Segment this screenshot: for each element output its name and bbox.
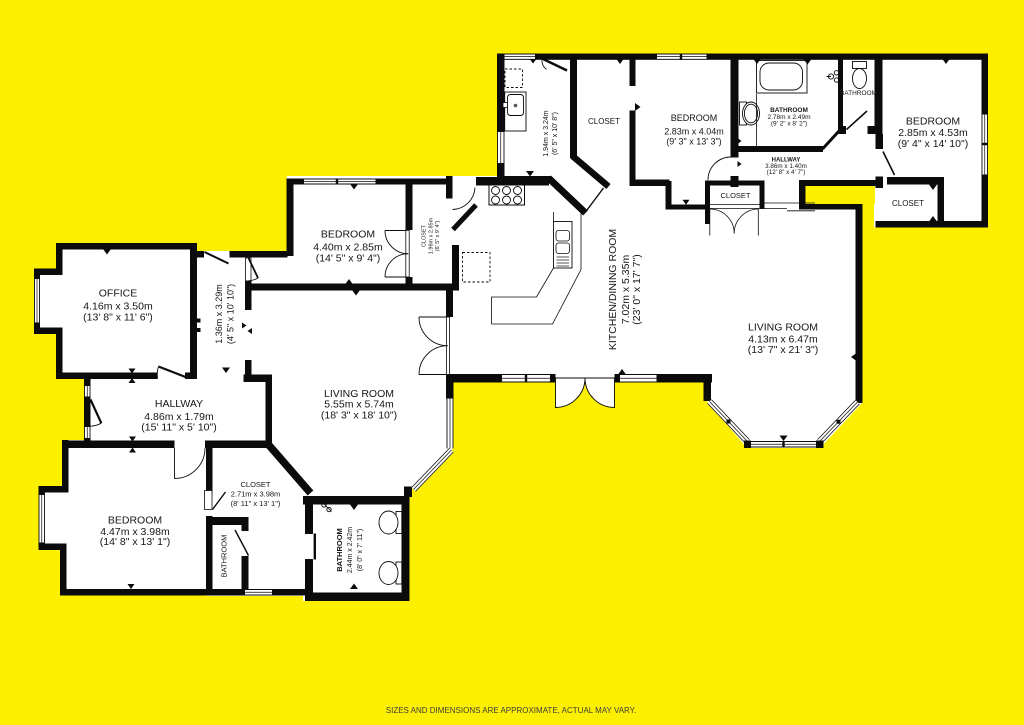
svg-text:BATHROOM: BATHROOM bbox=[770, 107, 808, 114]
svg-text:CLOSET: CLOSET bbox=[892, 199, 924, 208]
svg-text:CLOSET: CLOSET bbox=[720, 191, 750, 200]
svg-text:CLOSET: CLOSET bbox=[240, 480, 270, 489]
svg-text:KITCHEN/DINING ROOM: KITCHEN/DINING ROOM bbox=[607, 229, 619, 350]
svg-text:(13' 7" x 21' 3"): (13' 7" x 21' 3") bbox=[748, 344, 818, 356]
svg-text:OFFICE: OFFICE bbox=[99, 288, 138, 300]
svg-text:BEDROOM: BEDROOM bbox=[321, 229, 375, 241]
svg-text:(18' 3" x 18' 10"): (18' 3" x 18' 10") bbox=[321, 410, 397, 422]
svg-text:(14' 5" x 9' 4"): (14' 5" x 9' 4") bbox=[316, 253, 381, 265]
svg-text:(4' 5" x 10' 10"): (4' 5" x 10' 10") bbox=[226, 284, 236, 344]
svg-text:SIZES AND DIMENSIONS ARE APPRO: SIZES AND DIMENSIONS ARE APPROXIMATE, AC… bbox=[386, 706, 636, 715]
svg-text:BEDROOM: BEDROOM bbox=[671, 113, 718, 123]
svg-text:(15' 11" x 5' 10"): (15' 11" x 5' 10") bbox=[141, 422, 216, 434]
svg-text:(9' 4" x 14' 10"): (9' 4" x 14' 10") bbox=[898, 138, 968, 150]
svg-text:(13' 8" x 11' 6"): (13' 8" x 11' 6") bbox=[83, 312, 153, 324]
svg-text:2.71m x 3.98m: 2.71m x 3.98m bbox=[231, 490, 281, 499]
svg-text:CLOSET: CLOSET bbox=[588, 117, 620, 126]
svg-text:(9' 3" x 13' 3"): (9' 3" x 13' 3") bbox=[666, 137, 721, 147]
svg-text:BEDROOM: BEDROOM bbox=[906, 116, 960, 128]
svg-text:BATHROOM: BATHROOM bbox=[335, 528, 344, 572]
svg-text:1.96m x 2.85m: 1.96m x 2.85m bbox=[429, 217, 435, 254]
svg-text:CLOSET: CLOSET bbox=[422, 224, 428, 247]
svg-text:(6' 5" x 10' 8"): (6' 5" x 10' 8") bbox=[552, 112, 559, 155]
svg-text:2.44m x 2.42m: 2.44m x 2.42m bbox=[347, 527, 354, 573]
svg-text:(6' 5" x 9' 4"): (6' 5" x 9' 4") bbox=[435, 220, 441, 251]
svg-text:BATHROOM: BATHROOM bbox=[840, 90, 877, 97]
svg-text:(8' 0" x 7' 11"): (8' 0" x 7' 11") bbox=[357, 529, 364, 572]
svg-text:(9' 2" x 8' 2"): (9' 2" x 8' 2") bbox=[771, 120, 807, 127]
svg-text:BATHROOM: BATHROOM bbox=[220, 535, 229, 578]
svg-text:(14' 8" x 13' 1"): (14' 8" x 13' 1") bbox=[100, 536, 170, 548]
svg-text:2.83m x 4.04m: 2.83m x 4.04m bbox=[664, 127, 724, 137]
svg-text:(23' 0" x 17' 7"): (23' 0" x 17' 7") bbox=[631, 254, 643, 324]
svg-text:HALLWAY: HALLWAY bbox=[155, 398, 203, 410]
svg-text:(8' 11" x 13' 1"): (8' 11" x 13' 1") bbox=[231, 499, 281, 508]
svg-text:1.94m x 3.24m: 1.94m x 3.24m bbox=[543, 110, 550, 156]
svg-text:(12' 8" x 4' 7"): (12' 8" x 4' 7") bbox=[767, 169, 806, 176]
svg-text:LIVING ROOM: LIVING ROOM bbox=[748, 321, 818, 333]
svg-text:1.36m x 3.29m: 1.36m x 3.29m bbox=[214, 284, 224, 344]
svg-text:BEDROOM: BEDROOM bbox=[108, 515, 162, 527]
